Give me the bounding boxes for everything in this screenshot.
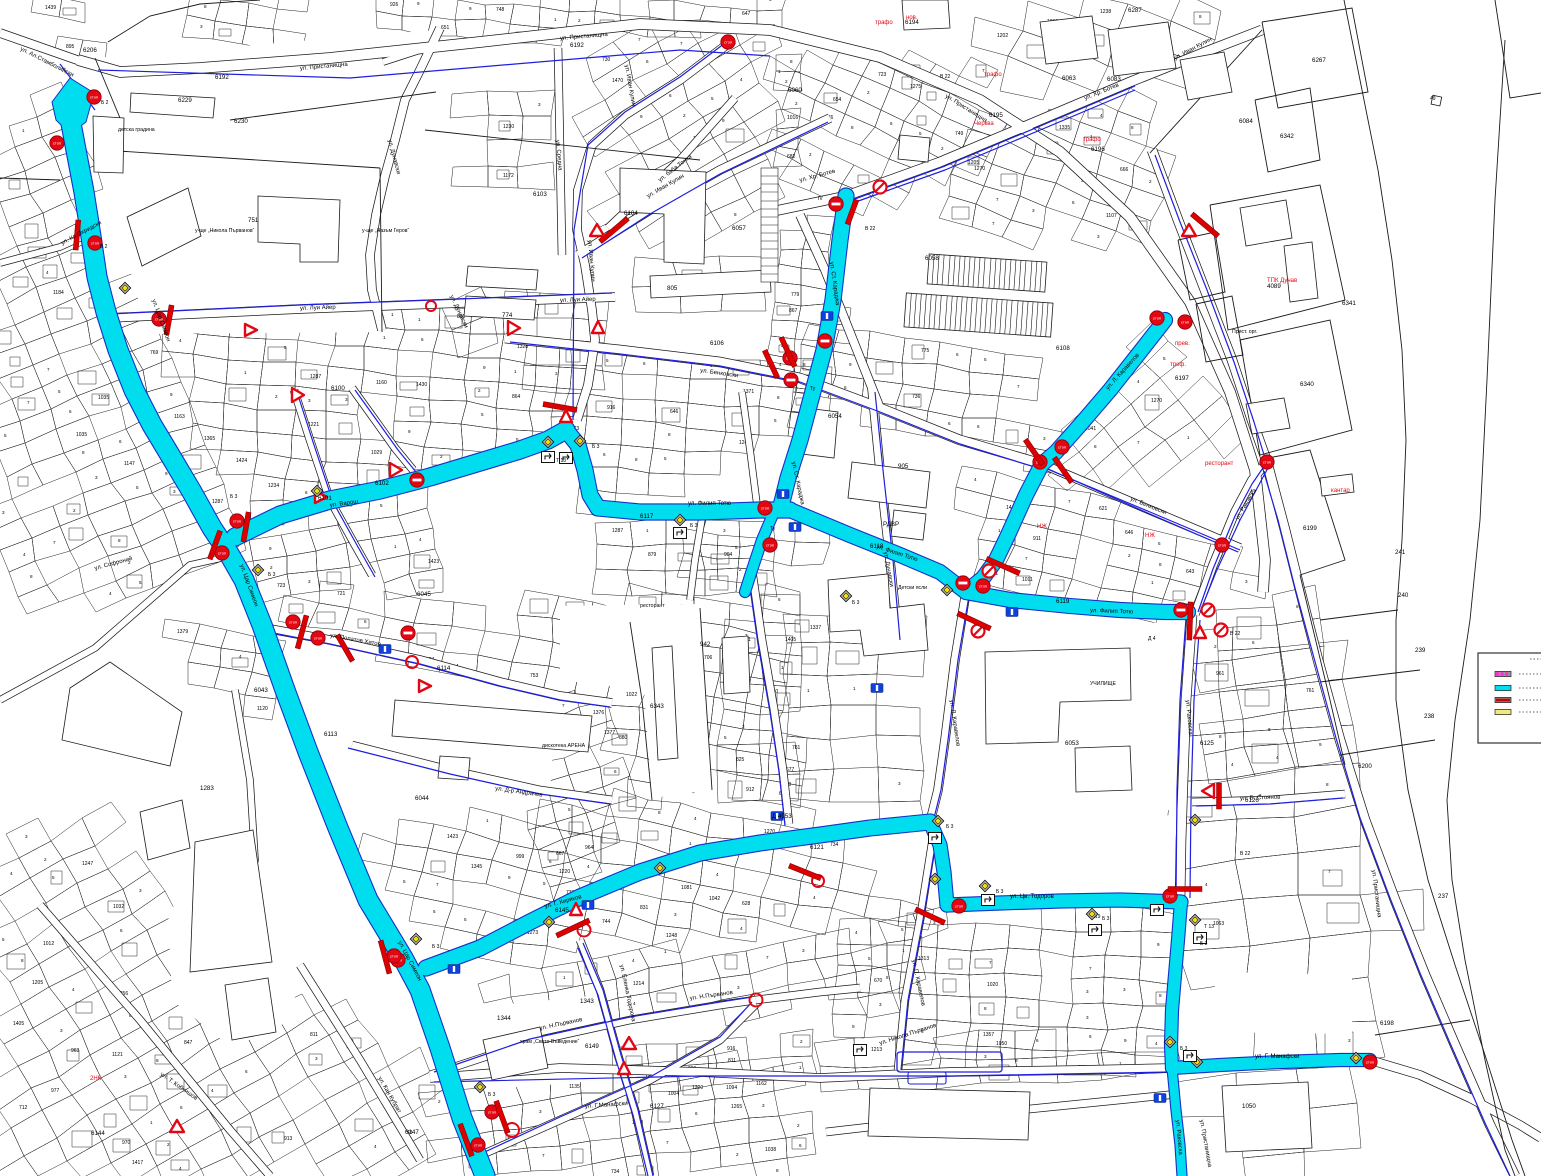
svg-text:964: 964 xyxy=(585,845,594,851)
svg-text:3: 3 xyxy=(538,102,541,107)
svg-text:6104: 6104 xyxy=(624,210,638,217)
svg-text:49: 49 xyxy=(1430,96,1436,102)
svg-text:7: 7 xyxy=(1137,440,1140,445)
svg-text:1004: 1004 xyxy=(668,1091,679,1097)
svg-text:1: 1 xyxy=(1151,580,1154,585)
svg-text:Б 3: Б 3 xyxy=(488,1092,496,1098)
svg-text:3: 3 xyxy=(95,475,98,480)
svg-text:1365: 1365 xyxy=(204,436,215,442)
svg-text:5: 5 xyxy=(919,131,922,136)
svg-text:646: 646 xyxy=(670,409,679,415)
svg-text:2: 2 xyxy=(438,1099,441,1104)
svg-text:1470: 1470 xyxy=(612,78,623,84)
svg-text:стоп: стоп xyxy=(53,141,61,146)
svg-text:6118: 6118 xyxy=(870,543,884,550)
svg-text:1287: 1287 xyxy=(310,374,321,380)
svg-text:1424: 1424 xyxy=(236,458,247,464)
svg-text:811: 811 xyxy=(728,1058,736,1064)
svg-text:8: 8 xyxy=(156,1058,159,1063)
svg-text:6196: 6196 xyxy=(1091,146,1105,153)
svg-text:7: 7 xyxy=(1025,556,1028,561)
svg-text:999: 999 xyxy=(516,854,525,860)
svg-text:6113: 6113 xyxy=(324,731,338,738)
svg-text:Б 3: Б 3 xyxy=(1200,941,1208,947)
svg-text:4: 4 xyxy=(779,362,782,367)
svg-text:749: 749 xyxy=(955,131,964,137)
svg-text:6100: 6100 xyxy=(331,385,345,392)
svg-text:1029: 1029 xyxy=(371,450,382,456)
svg-text:у-ще „Никола Първанов“: у-ще „Никола Първанов“ xyxy=(195,228,255,234)
svg-text:723: 723 xyxy=(277,583,286,589)
svg-text:1234: 1234 xyxy=(268,483,279,489)
svg-text:775: 775 xyxy=(921,348,930,354)
svg-text:9: 9 xyxy=(640,114,643,119)
svg-text:Б 2: Б 2 xyxy=(100,244,108,250)
svg-text:стоп: стоп xyxy=(979,584,987,589)
svg-text:4: 4 xyxy=(179,338,182,343)
svg-text:6145: 6145 xyxy=(555,907,569,914)
svg-text:Б 3: Б 3 xyxy=(268,572,276,578)
svg-text:6: 6 xyxy=(549,859,552,864)
svg-text:1337: 1337 xyxy=(810,625,821,631)
svg-text:треф.: треф. xyxy=(1170,362,1186,368)
svg-text:1: 1 xyxy=(807,688,810,693)
svg-text:8: 8 xyxy=(204,4,207,9)
svg-text:926: 926 xyxy=(390,2,399,8)
svg-text:трафо: трафо xyxy=(875,20,893,26)
svg-text:3: 3 xyxy=(1097,234,1100,239)
svg-text:8: 8 xyxy=(1094,444,1097,449)
svg-text:9: 9 xyxy=(852,1024,855,1029)
svg-text:4: 4 xyxy=(374,1144,377,1149)
svg-text:4: 4 xyxy=(179,1166,182,1171)
svg-text:5: 5 xyxy=(769,0,772,2)
svg-text:6: 6 xyxy=(948,421,951,426)
svg-text:6230: 6230 xyxy=(234,118,248,125)
svg-text:стоп: стоп xyxy=(314,636,322,641)
svg-text:9: 9 xyxy=(849,362,852,367)
svg-text:1248: 1248 xyxy=(666,933,677,939)
svg-text:3: 3 xyxy=(674,912,677,917)
svg-text:4: 4 xyxy=(239,654,242,659)
svg-text:864: 864 xyxy=(512,394,521,400)
svg-text:4: 4 xyxy=(632,958,635,963)
svg-text:Б 3: Б 3 xyxy=(946,824,954,830)
svg-text:3: 3 xyxy=(984,1054,987,1059)
svg-text:3: 3 xyxy=(898,781,901,786)
svg-text:1016: 1016 xyxy=(787,115,798,121)
svg-text:9: 9 xyxy=(1015,1058,1018,1063)
svg-text:3: 3 xyxy=(2,510,5,515)
svg-text:2: 2 xyxy=(1149,179,1152,184)
svg-text:1012: 1012 xyxy=(43,941,54,947)
svg-text:5: 5 xyxy=(52,875,55,880)
svg-text:9: 9 xyxy=(1319,742,1322,747)
svg-text:6: 6 xyxy=(799,1143,802,1148)
svg-text:8: 8 xyxy=(1326,782,1329,787)
svg-text:643: 643 xyxy=(1186,569,1195,575)
svg-text:712: 712 xyxy=(19,1105,28,1111)
svg-text:6126: 6126 xyxy=(1245,797,1259,804)
svg-text:1050: 1050 xyxy=(996,1041,1007,1047)
svg-text:3: 3 xyxy=(539,1109,542,1114)
svg-text:905: 905 xyxy=(898,463,909,470)
svg-text:2: 2 xyxy=(167,1142,170,1147)
svg-text:В 22: В 22 xyxy=(1240,851,1251,857)
svg-text:2: 2 xyxy=(941,146,944,151)
svg-text:3: 3 xyxy=(1032,208,1035,213)
svg-text:6: 6 xyxy=(1089,1034,1092,1039)
svg-text:1265: 1265 xyxy=(731,1104,742,1110)
svg-text:916: 916 xyxy=(607,405,616,411)
svg-text:904: 904 xyxy=(724,552,733,558)
svg-text:825: 825 xyxy=(736,757,745,763)
svg-text:1213: 1213 xyxy=(871,1047,882,1053)
svg-text:774: 774 xyxy=(502,312,513,319)
svg-text:5: 5 xyxy=(868,956,871,961)
svg-text:6: 6 xyxy=(695,1111,698,1116)
svg-text:2: 2 xyxy=(73,508,76,513)
svg-text:6: 6 xyxy=(421,337,424,342)
svg-text:3: 3 xyxy=(879,1002,882,1007)
svg-text:730: 730 xyxy=(602,57,611,63)
svg-text:6: 6 xyxy=(245,1069,248,1074)
svg-text:4: 4 xyxy=(1231,762,1234,767)
svg-text:6192: 6192 xyxy=(215,74,229,81)
svg-text:1: 1 xyxy=(778,69,781,74)
svg-text:7: 7 xyxy=(27,400,30,405)
svg-text:8: 8 xyxy=(21,958,24,963)
svg-text:7: 7 xyxy=(766,955,769,960)
svg-text:769: 769 xyxy=(150,350,159,356)
svg-text:Б 3: Б 3 xyxy=(690,523,698,529)
svg-text:6083: 6083 xyxy=(1107,76,1121,83)
svg-text:6: 6 xyxy=(305,490,308,495)
svg-text:стоп: стоп xyxy=(390,954,398,959)
svg-text:3: 3 xyxy=(555,371,558,376)
svg-text:6198: 6198 xyxy=(1380,1020,1394,1027)
svg-text:6199: 6199 xyxy=(1303,525,1317,532)
svg-text:1220: 1220 xyxy=(559,869,570,875)
svg-text:стоп: стоп xyxy=(1218,543,1226,548)
svg-text:667: 667 xyxy=(556,851,565,857)
svg-text:9: 9 xyxy=(170,392,173,397)
svg-text:трафо: трафо xyxy=(984,72,1002,78)
svg-text:1022: 1022 xyxy=(626,692,637,698)
svg-text:7: 7 xyxy=(53,540,56,545)
svg-text:7: 7 xyxy=(1089,966,1092,971)
svg-text:2: 2 xyxy=(809,152,812,157)
svg-text:8: 8 xyxy=(984,1006,987,1011)
svg-text:781: 781 xyxy=(792,745,801,751)
svg-text:2: 2 xyxy=(1214,644,1217,649)
svg-text:736: 736 xyxy=(912,394,921,400)
svg-text:970: 970 xyxy=(122,1140,131,1146)
svg-text:6043: 6043 xyxy=(254,687,268,694)
svg-text:1120: 1120 xyxy=(257,706,268,712)
svg-text:6: 6 xyxy=(669,93,672,98)
svg-text:9: 9 xyxy=(417,1,420,6)
svg-text:4: 4 xyxy=(1100,113,1103,118)
svg-text:прев.: прев. xyxy=(1175,341,1190,347)
svg-text:3: 3 xyxy=(173,489,176,494)
svg-text:963: 963 xyxy=(71,1048,80,1054)
svg-text:628: 628 xyxy=(742,901,751,907)
svg-text:879: 879 xyxy=(648,552,657,558)
svg-text:1: 1 xyxy=(554,17,557,22)
svg-text:2: 2 xyxy=(440,454,443,459)
svg-text:1184: 1184 xyxy=(53,290,64,296)
svg-text:8: 8 xyxy=(777,395,780,400)
svg-text:4: 4 xyxy=(694,816,697,821)
svg-text:2: 2 xyxy=(270,565,273,570)
svg-text:Б 3: Б 3 xyxy=(852,600,860,606)
svg-text:стоп: стоп xyxy=(474,1143,482,1148)
svg-text:1214: 1214 xyxy=(633,981,644,987)
svg-text:Д 4: Д 4 xyxy=(1148,636,1156,642)
svg-text:8: 8 xyxy=(82,450,85,455)
svg-text:2: 2 xyxy=(797,1123,800,1128)
svg-text:6: 6 xyxy=(119,439,122,444)
svg-text:4089: 4089 xyxy=(1267,283,1281,290)
svg-text:6: 6 xyxy=(364,619,367,624)
svg-text:6: 6 xyxy=(1252,640,1255,645)
svg-text:654: 654 xyxy=(833,97,842,103)
svg-text:4: 4 xyxy=(1155,1041,1158,1046)
svg-text:3: 3 xyxy=(124,1074,127,1079)
svg-text:4: 4 xyxy=(974,477,977,482)
svg-text:805: 805 xyxy=(667,285,678,292)
svg-text:8: 8 xyxy=(851,125,854,130)
svg-text:1287: 1287 xyxy=(212,499,223,505)
svg-text:1032: 1032 xyxy=(113,904,124,910)
svg-text:1357: 1357 xyxy=(983,1032,994,1038)
svg-text:2: 2 xyxy=(478,388,481,393)
svg-text:1313: 1313 xyxy=(918,956,929,962)
svg-text:6200: 6200 xyxy=(1358,763,1372,770)
svg-text:5: 5 xyxy=(1163,356,1166,361)
svg-text:1147: 1147 xyxy=(124,461,135,467)
svg-text:2: 2 xyxy=(867,90,870,95)
svg-text:ул. Луи Айер: ул. Луи Айер xyxy=(560,296,597,304)
svg-text:6: 6 xyxy=(603,452,606,457)
svg-text:4: 4 xyxy=(211,1088,214,1093)
svg-text:1: 1 xyxy=(514,369,517,374)
svg-text:РДВР: РДВР xyxy=(883,521,899,528)
svg-text:913: 913 xyxy=(284,1136,293,1142)
svg-text:В 22: В 22 xyxy=(1230,631,1241,637)
svg-text:Т 13: Т 13 xyxy=(556,458,566,464)
svg-text:6: 6 xyxy=(646,59,649,64)
svg-text:Д 4953: Д 4953 xyxy=(772,813,792,820)
svg-text:3: 3 xyxy=(139,888,142,893)
svg-text:8: 8 xyxy=(1199,14,1202,19)
svg-text:В 22: В 22 xyxy=(940,74,951,80)
svg-text:9: 9 xyxy=(269,546,272,551)
svg-text:3: 3 xyxy=(200,24,203,29)
svg-text:6147: 6147 xyxy=(405,1129,419,1136)
svg-text:6102: 6102 xyxy=(375,480,389,487)
svg-text:1107: 1107 xyxy=(1106,213,1117,219)
svg-text:НЖ: НЖ xyxy=(1037,524,1047,530)
svg-text:6342: 6342 xyxy=(1280,133,1294,140)
svg-text:Детски ясли: Детски ясли xyxy=(898,585,927,591)
svg-text:стоп: стоп xyxy=(761,506,769,511)
svg-text:1081: 1081 xyxy=(681,885,692,891)
svg-text:2: 2 xyxy=(44,857,47,862)
svg-text:3: 3 xyxy=(1086,1015,1089,1020)
svg-text:2: 2 xyxy=(736,1152,739,1157)
svg-text:3: 3 xyxy=(308,398,311,403)
svg-text:6054: 6054 xyxy=(828,413,842,420)
svg-text:1238: 1238 xyxy=(1100,9,1111,15)
svg-text:1: 1 xyxy=(689,841,692,846)
svg-text:стоп: стоп xyxy=(90,95,98,100)
svg-text:Т 13: Т 13 xyxy=(1204,924,1214,930)
svg-text:В 22: В 22 xyxy=(865,226,876,232)
svg-text:1: 1 xyxy=(799,1065,802,1070)
svg-text:6267: 6267 xyxy=(1312,57,1326,64)
svg-text:4: 4 xyxy=(1205,882,1208,887)
svg-text:6108: 6108 xyxy=(1056,345,1070,352)
svg-text:4: 4 xyxy=(1137,379,1140,384)
svg-text:7: 7 xyxy=(1068,499,1071,504)
svg-text:4: 4 xyxy=(23,552,26,557)
svg-text:1160: 1160 xyxy=(376,380,387,386)
svg-text:IV: IV xyxy=(818,196,823,202)
svg-text:2: 2 xyxy=(683,113,686,118)
svg-text:6: 6 xyxy=(956,352,959,357)
svg-text:6195: 6195 xyxy=(989,112,1003,119)
svg-text:8: 8 xyxy=(1268,727,1271,732)
svg-text:3: 3 xyxy=(1123,987,1126,992)
svg-text:стоп: стоп xyxy=(233,519,241,524)
svg-text:6287: 6287 xyxy=(1128,7,1142,14)
svg-text:1343: 1343 xyxy=(580,998,594,1005)
svg-text:стоп: стоп xyxy=(1153,316,1161,321)
svg-text:5: 5 xyxy=(1158,541,1161,546)
svg-text:2: 2 xyxy=(742,724,745,729)
svg-text:238: 238 xyxy=(1424,713,1435,720)
svg-text:1376: 1376 xyxy=(593,710,604,716)
svg-text:стоп: стоп xyxy=(724,40,732,45)
svg-text:1417: 1417 xyxy=(132,1160,143,1166)
svg-text:6060: 6060 xyxy=(788,87,802,94)
svg-text:6106: 6106 xyxy=(710,340,724,347)
svg-text:8: 8 xyxy=(1219,734,1222,739)
svg-text:1335: 1335 xyxy=(1059,125,1070,131)
svg-text:1423: 1423 xyxy=(447,834,458,840)
svg-text:5: 5 xyxy=(2,937,5,942)
svg-text:5: 5 xyxy=(711,96,714,101)
svg-text:стоп: стоп xyxy=(1181,320,1189,325)
svg-text:1230: 1230 xyxy=(503,124,514,130)
svg-text:847: 847 xyxy=(184,1040,193,1046)
svg-text:6119: 6119 xyxy=(1056,598,1070,605)
svg-text:3: 3 xyxy=(1043,436,1046,441)
svg-text:Б 3: Б 3 xyxy=(1180,1046,1188,1052)
svg-text:8: 8 xyxy=(1159,993,1162,998)
svg-text:5: 5 xyxy=(664,456,667,461)
svg-text:5: 5 xyxy=(4,433,7,438)
svg-text:1247: 1247 xyxy=(82,861,93,867)
svg-text:1050: 1050 xyxy=(1242,1103,1256,1110)
svg-text:6053: 6053 xyxy=(1065,740,1079,747)
svg-text:1430: 1430 xyxy=(416,382,427,388)
svg-text:1042: 1042 xyxy=(709,896,720,902)
svg-text:7: 7 xyxy=(992,221,995,226)
svg-text:1: 1 xyxy=(646,528,649,533)
svg-text:8: 8 xyxy=(776,1168,779,1173)
svg-text:8: 8 xyxy=(635,457,638,462)
svg-text:6044: 6044 xyxy=(415,795,429,802)
svg-text:880: 880 xyxy=(619,735,628,741)
svg-text:1020: 1020 xyxy=(987,982,998,988)
svg-text:1275: 1275 xyxy=(910,84,921,90)
svg-text:6057: 6057 xyxy=(732,225,746,232)
svg-text:2: 2 xyxy=(739,567,742,572)
svg-text:6192: 6192 xyxy=(570,42,584,49)
svg-text:3: 3 xyxy=(345,397,348,402)
svg-text:3: 3 xyxy=(802,948,805,953)
svg-text:3: 3 xyxy=(1348,1038,1351,1043)
svg-text:8: 8 xyxy=(1131,125,1134,130)
svg-text:646: 646 xyxy=(1125,530,1134,536)
svg-text:4: 4 xyxy=(813,895,816,900)
svg-text:9: 9 xyxy=(165,471,168,476)
svg-text:5: 5 xyxy=(139,580,142,585)
svg-text:721: 721 xyxy=(337,591,346,597)
svg-text:1423: 1423 xyxy=(428,559,439,565)
svg-text:1377: 1377 xyxy=(604,730,615,736)
svg-text:ул. Филип Тотю: ул. Филип Тотю xyxy=(688,501,732,507)
svg-text:1220: 1220 xyxy=(692,1085,703,1091)
svg-text:6117: 6117 xyxy=(640,513,654,520)
svg-text:дискотека АРЕНА: дискотека АРЕНА xyxy=(542,743,586,749)
svg-text:5: 5 xyxy=(735,545,738,550)
svg-text:4: 4 xyxy=(72,987,75,992)
svg-text:1: 1 xyxy=(22,128,25,133)
svg-text:трафо: трафо xyxy=(1083,137,1101,143)
svg-text:8: 8 xyxy=(30,574,33,579)
svg-text:8: 8 xyxy=(1159,562,1162,567)
svg-text:3: 3 xyxy=(60,1028,63,1033)
svg-text:1: 1 xyxy=(244,370,247,375)
svg-text:9: 9 xyxy=(1124,1038,1127,1043)
svg-text:1121: 1121 xyxy=(112,1052,123,1058)
svg-text:Б 3: Б 3 xyxy=(996,889,1004,895)
svg-text:6340: 6340 xyxy=(1300,381,1314,388)
svg-text:1405: 1405 xyxy=(785,637,796,643)
svg-text:8: 8 xyxy=(803,362,806,367)
svg-text:6: 6 xyxy=(120,928,123,933)
svg-text:Б 3: Б 3 xyxy=(230,494,238,500)
svg-text:1: 1 xyxy=(391,312,394,317)
svg-text:1202: 1202 xyxy=(997,33,1008,39)
svg-text:706: 706 xyxy=(704,655,713,661)
svg-text:1135: 1135 xyxy=(569,1084,580,1090)
svg-text:Ту: Ту xyxy=(810,386,816,392)
svg-text:4: 4 xyxy=(740,926,743,931)
svg-text:241: 241 xyxy=(1395,549,1406,556)
svg-text:9: 9 xyxy=(1157,942,1160,947)
svg-text:647: 647 xyxy=(742,11,751,17)
svg-text:6: 6 xyxy=(614,769,617,774)
svg-text:1283: 1283 xyxy=(200,785,214,792)
svg-text:ресторант: ресторант xyxy=(640,603,665,609)
svg-text:6114: 6114 xyxy=(437,665,451,672)
svg-text:1270: 1270 xyxy=(974,166,985,172)
